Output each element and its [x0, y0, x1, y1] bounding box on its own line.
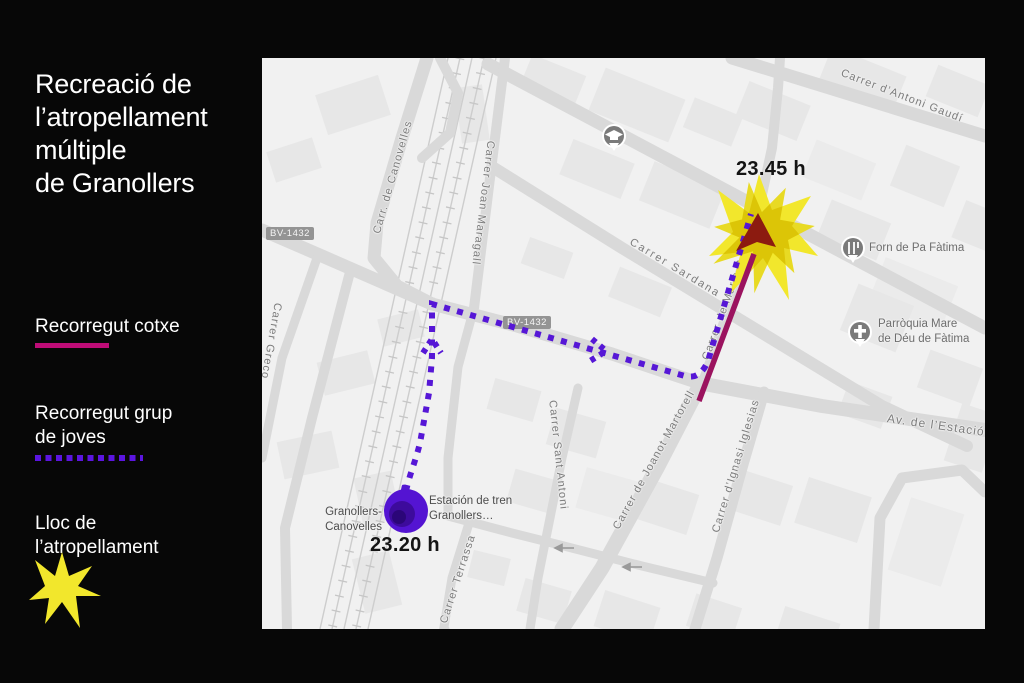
time-label-departure: 23.20 h — [370, 534, 440, 557]
map-canvas: Carr. de Canovelles Carrer Joan Maragall… — [262, 58, 985, 629]
group-route-dotted-path — [406, 214, 751, 491]
bakery-poi-pin — [841, 236, 865, 263]
origin-marker — [384, 484, 428, 533]
car-route-swatch — [35, 343, 109, 348]
side-panel: Recreació de l’atropellament múltiple de… — [0, 0, 262, 683]
station-label-right: Estación de tren Granollers… — [429, 494, 512, 524]
poi-label-parroquia: Parròquia Mare de Déu de Fàtima — [878, 317, 969, 347]
time-label-impact: 23.45 h — [736, 158, 806, 181]
school-poi-pin — [602, 124, 626, 151]
church-poi-pin — [848, 320, 872, 347]
infographic-root: Recreació de l’atropellament múltiple de… — [0, 0, 1024, 683]
group-route-swatch — [35, 455, 143, 461]
impact-star-icon — [26, 550, 104, 634]
legend-label-group: Recorregut grup de joves — [35, 402, 172, 450]
page-title: Recreació de l’atropellament múltiple de… — [35, 68, 208, 200]
poi-label-forn: Forn de Pa Fàtima — [869, 241, 964, 256]
car-route-line — [699, 254, 754, 401]
station-label-left: Granollers-Canovelles — [270, 505, 382, 535]
legend-label-car: Recorregut cotxe — [35, 315, 180, 339]
group-route-arrow-up — [423, 339, 441, 353]
